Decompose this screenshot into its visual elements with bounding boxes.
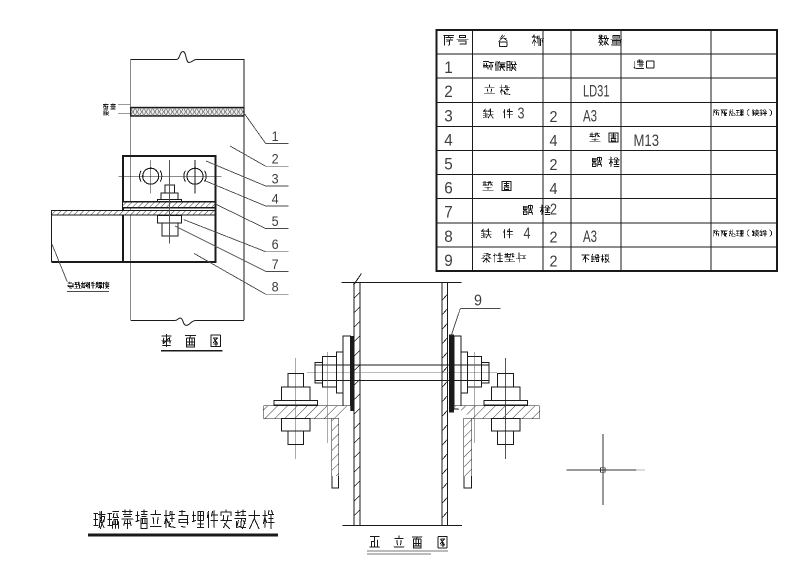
svg-text:2: 2	[444, 82, 453, 101]
svg-text:3: 3	[444, 106, 453, 125]
svg-text:A3: A3	[583, 227, 597, 246]
svg-text:2: 2	[272, 152, 279, 167]
svg-text:5: 5	[272, 214, 279, 229]
svg-text:2: 2	[550, 157, 558, 174]
svg-text:4: 4	[550, 181, 558, 198]
svg-text:A3: A3	[583, 107, 597, 126]
svg-text:4: 4	[550, 133, 558, 150]
svg-text:8: 8	[444, 227, 453, 246]
svg-text:2: 2	[550, 229, 558, 246]
svg-text:LD31: LD31	[583, 82, 610, 101]
svg-text:4: 4	[272, 192, 279, 207]
svg-text:7: 7	[272, 257, 279, 272]
svg-text:6: 6	[444, 179, 453, 198]
svg-text:2: 2	[550, 202, 557, 219]
svg-text:4: 4	[524, 226, 531, 243]
svg-text:9: 9	[444, 251, 453, 270]
svg-text:M13: M13	[634, 131, 660, 150]
svg-text:3: 3	[518, 106, 525, 123]
svg-text:9: 9	[474, 293, 482, 310]
svg-text:8: 8	[272, 280, 279, 295]
svg-text:7: 7	[444, 203, 453, 222]
svg-text:1: 1	[272, 129, 279, 144]
svg-text:2: 2	[550, 109, 558, 126]
svg-text:2: 2	[550, 253, 558, 270]
svg-text:6: 6	[272, 237, 279, 252]
svg-text:4: 4	[444, 130, 453, 149]
svg-text:3: 3	[272, 172, 279, 187]
svg-text:1: 1	[444, 58, 453, 77]
svg-text:5: 5	[444, 155, 453, 174]
